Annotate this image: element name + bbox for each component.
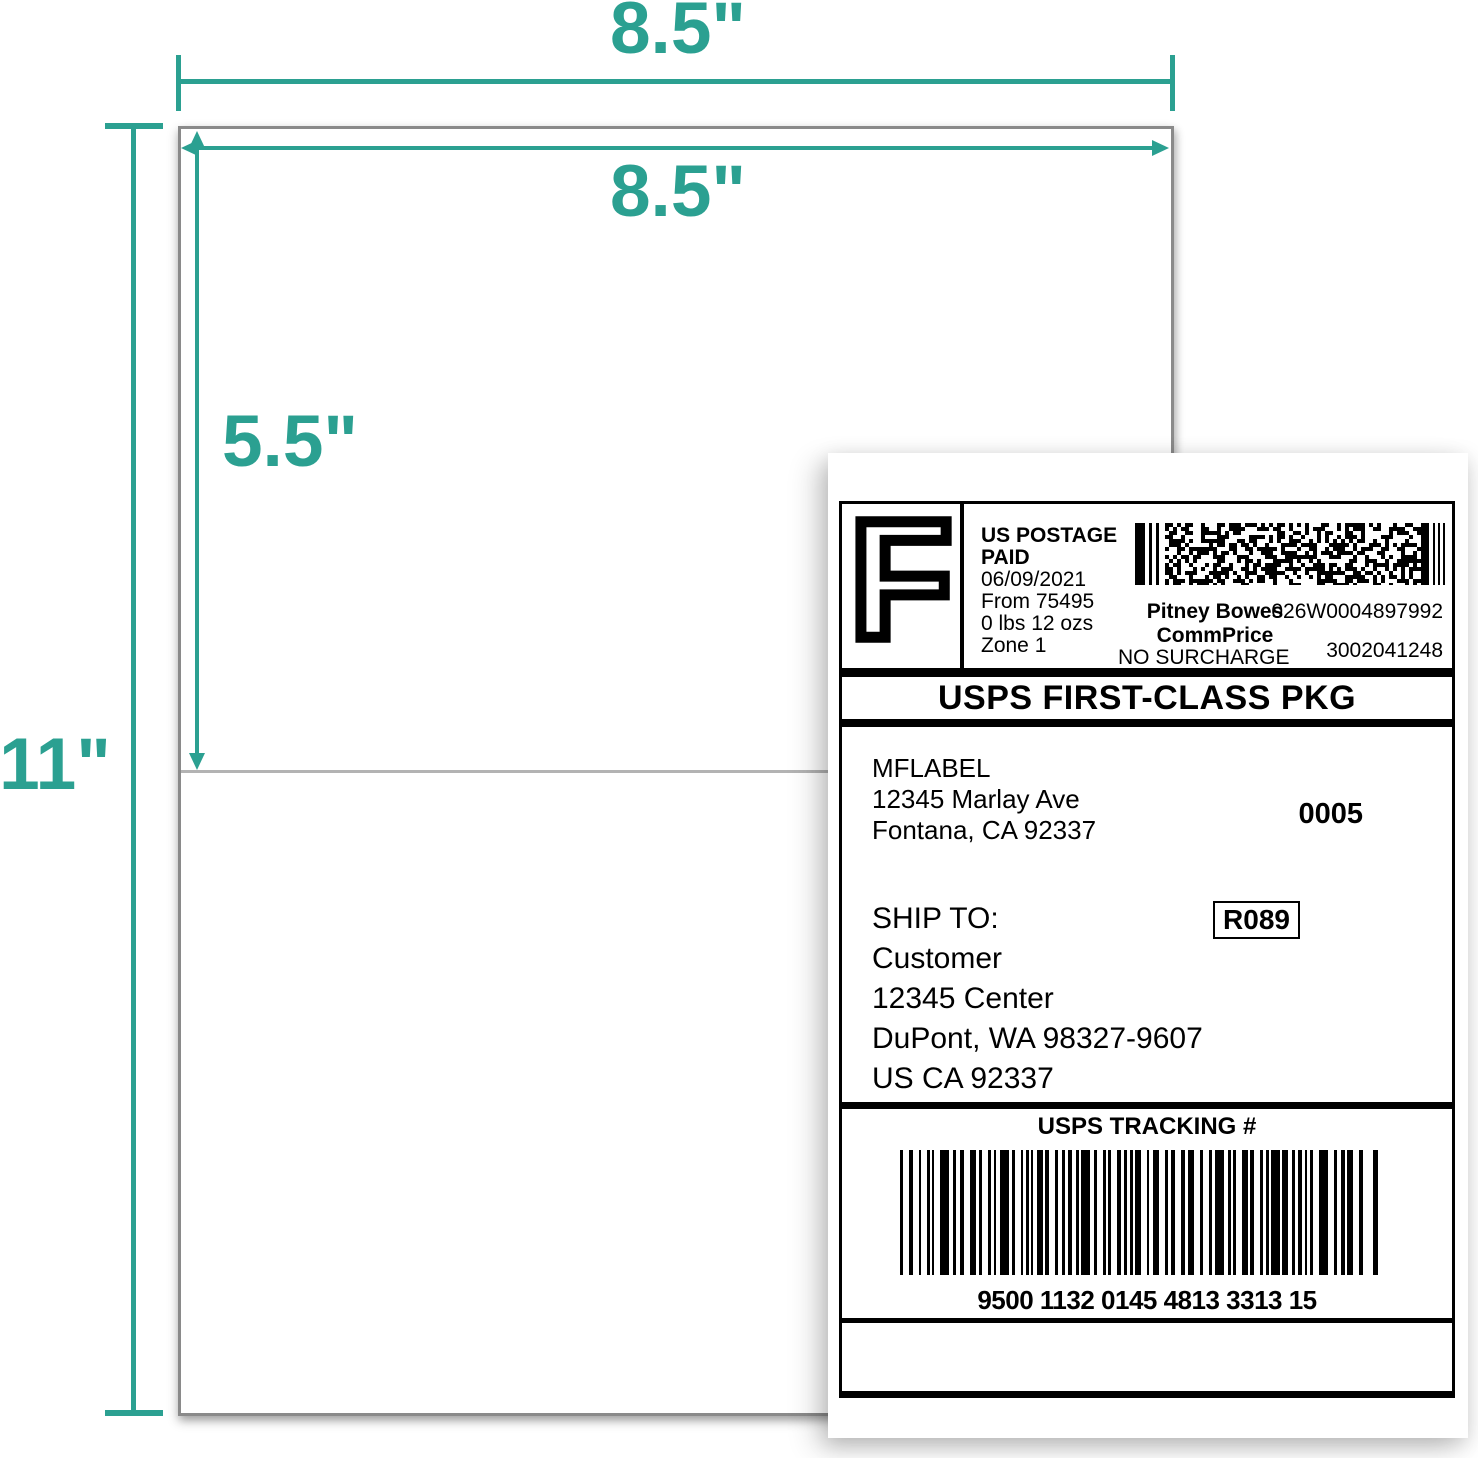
meter-id: 026W0004897992 [1271, 601, 1443, 623]
label-height-label: 5.5" [210, 405, 370, 478]
address-section: MFLABEL 12345 Marlay Ave Fontana, CA 923… [842, 727, 1452, 1109]
tracking-section: USPS TRACKING # 9500 1132 0145 4813 3313… [842, 1109, 1452, 1323]
postage-section: F US POSTAGE PAID 06/09/2021 From 75495 … [842, 504, 1452, 677]
sender-street: 12345 Marlay Ave [872, 784, 1096, 815]
meter-serial: 3002041248 [1326, 640, 1443, 662]
label-width-arrow-line [190, 146, 1160, 150]
ship-to-name: Customer [872, 939, 1203, 979]
product-dimension-diagram: 8.5" 11" 8.5" 5.5" F US POSTAGE PAID [0, 0, 1478, 1458]
label-width-label: 8.5" [378, 155, 978, 228]
meter-surcharge: NO SURCHARGE [1118, 647, 1290, 669]
tracking-barcode [900, 1150, 1378, 1275]
empty-bottom-row [842, 1323, 1452, 1391]
sheet-width-ruler-line [181, 79, 1170, 84]
postage-paid-statement: US POSTAGE PAID [981, 525, 1141, 569]
ship-to-city: DuPont, WA 98327-9607 [872, 1019, 1203, 1059]
sender-name: MFLABEL [872, 753, 1096, 784]
route-code-box: R089 [1213, 901, 1300, 939]
sheet-height-label: 11" [0, 728, 116, 801]
sheet-height-ruler [105, 123, 163, 1416]
sender-city: Fontana, CA 92337 [872, 815, 1096, 846]
shipping-label: F US POSTAGE PAID 06/09/2021 From 75495 … [839, 501, 1455, 1398]
postage-date: 06/09/2021 [981, 569, 1141, 591]
postage-meter-barcode [1135, 523, 1447, 585]
postage-zone: Zone 1 [981, 635, 1141, 657]
tracking-number: 9500 1132 0145 4813 3313 15 [842, 1285, 1452, 1316]
sheet-width-ruler [176, 55, 1175, 111]
postage-details: US POSTAGE PAID 06/09/2021 From 75495 0 … [981, 525, 1141, 657]
batch-number: 0005 [1298, 798, 1363, 831]
tracking-heading: USPS TRACKING # [842, 1113, 1452, 1141]
sender-address: MFLABEL 12345 Marlay Ave Fontana, CA 923… [872, 753, 1096, 846]
arrow-down-icon [189, 753, 205, 770]
postage-origin-zip: From 75495 [981, 591, 1141, 613]
arrow-right-icon [1152, 140, 1169, 156]
ship-to-heading: SHIP TO: [872, 899, 1203, 939]
postage-indicia-cell: F [842, 504, 964, 668]
meter-rate-type: CommPrice [1135, 625, 1295, 647]
ship-to-country: US CA 92337 [872, 1059, 1203, 1099]
service-class-banner: USPS FIRST-CLASS PKG [842, 677, 1452, 727]
shipping-label-card: F US POSTAGE PAID 06/09/2021 From 75495 … [828, 453, 1468, 1438]
ship-to-street: 12345 Center [872, 979, 1203, 1019]
postage-weight: 0 lbs 12 ozs [981, 613, 1141, 635]
ship-to-address: SHIP TO: Customer 12345 Center DuPont, W… [872, 899, 1203, 1099]
postage-indicia-letter: F [850, 495, 953, 663]
label-height-arrow-line [195, 140, 199, 761]
sheet-height-ruler-line [131, 129, 136, 1410]
label-height-arrow [189, 131, 205, 770]
